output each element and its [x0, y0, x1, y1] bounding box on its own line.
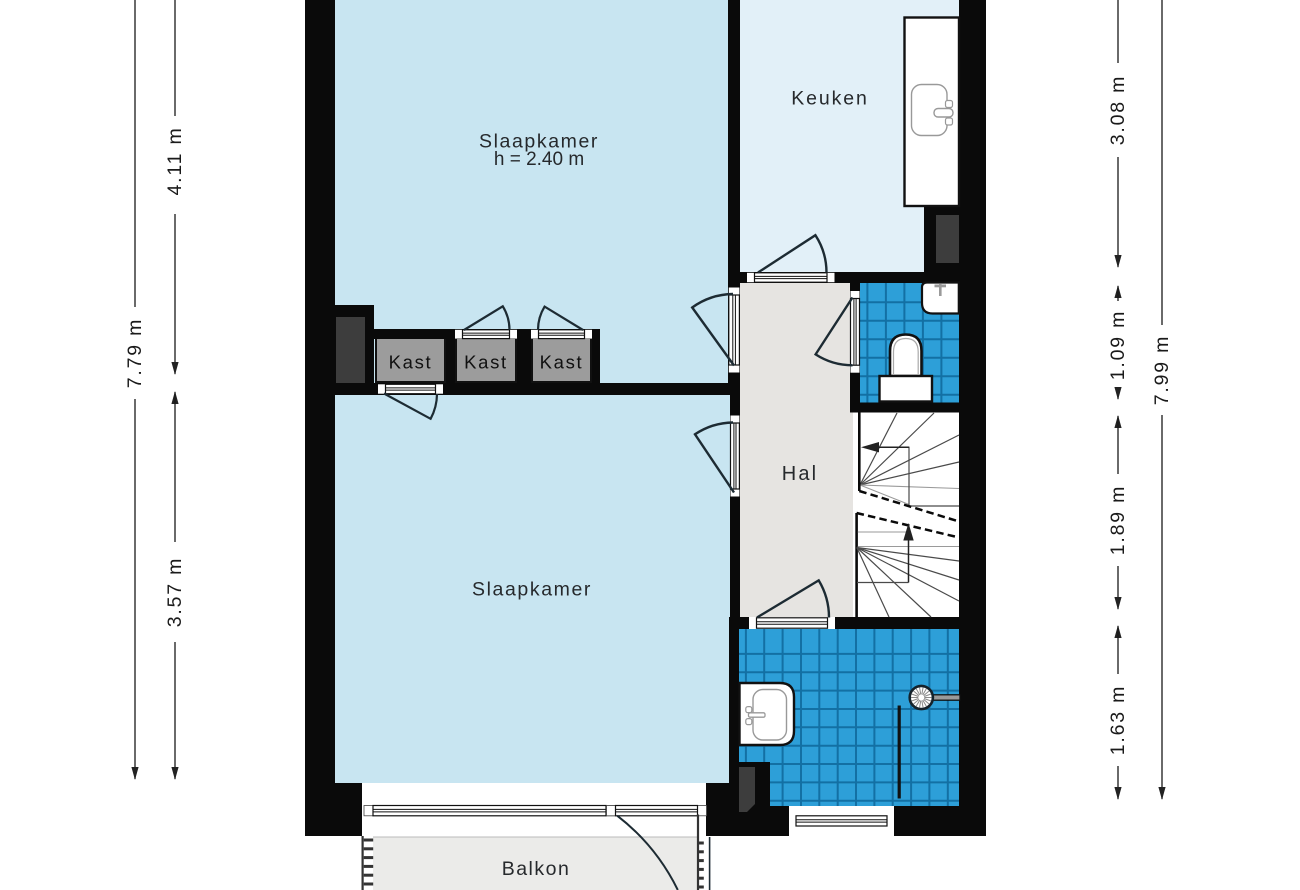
- svg-text:7.99 m: 7.99 m: [1151, 335, 1173, 405]
- svg-text:4.11 m: 4.11 m: [164, 127, 186, 196]
- svg-text:1.63 m: 1.63 m: [1107, 685, 1129, 755]
- svg-text:Kast: Kast: [389, 352, 433, 373]
- svg-text:Kast: Kast: [540, 352, 584, 373]
- svg-text:Slaapkamer: Slaapkamer: [472, 579, 592, 601]
- svg-text:Balkon: Balkon: [502, 858, 571, 880]
- svg-text:Hal: Hal: [782, 463, 819, 485]
- svg-text:1.89 m: 1.89 m: [1107, 485, 1129, 555]
- svg-text:h = 2.40 m: h = 2.40 m: [494, 149, 584, 170]
- svg-text:Keuken: Keuken: [791, 88, 869, 110]
- svg-text:7.79 m: 7.79 m: [124, 318, 146, 388]
- svg-text:3.57 m: 3.57 m: [164, 557, 186, 627]
- svg-text:Kast: Kast: [464, 352, 508, 373]
- svg-text:1.09 m: 1.09 m: [1107, 310, 1129, 380]
- svg-text:3.08 m: 3.08 m: [1107, 75, 1129, 145]
